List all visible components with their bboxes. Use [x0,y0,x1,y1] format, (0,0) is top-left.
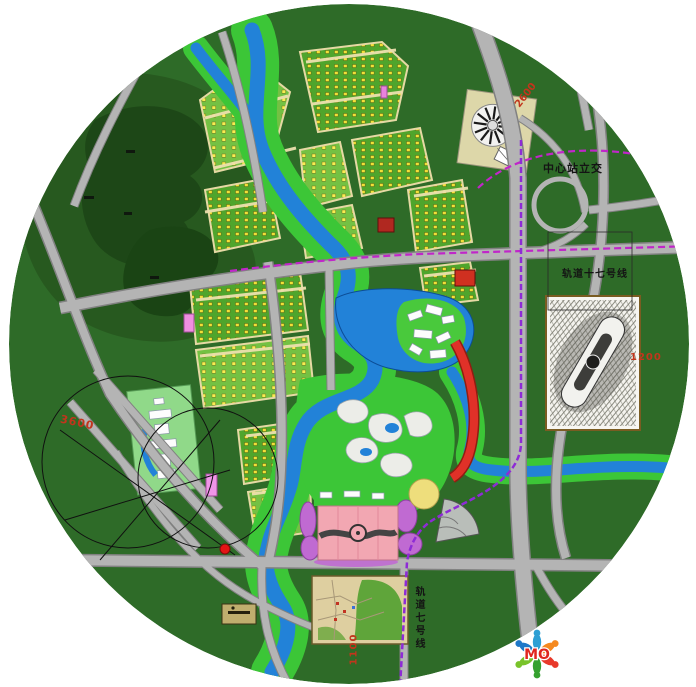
mo-logo: MO [500,624,574,686]
label-dim-south: 1100 [348,634,359,666]
label-rail-line-17: 轨道十七号线 [562,265,628,280]
sketch-card [538,296,649,430]
logo-text: MO [524,647,550,663]
label-rail-line-7: 轨道七号线 [411,586,426,651]
inset-map [312,576,408,644]
label-interchange: 中心站立交 [543,160,603,176]
label-dim-east: 1200 [630,352,662,363]
masterplan-map: 中心站立交 轨道十七号线 轨道七号线 2600 3600 1200 1100 M… [0,0,696,687]
map-canvas [0,0,696,687]
